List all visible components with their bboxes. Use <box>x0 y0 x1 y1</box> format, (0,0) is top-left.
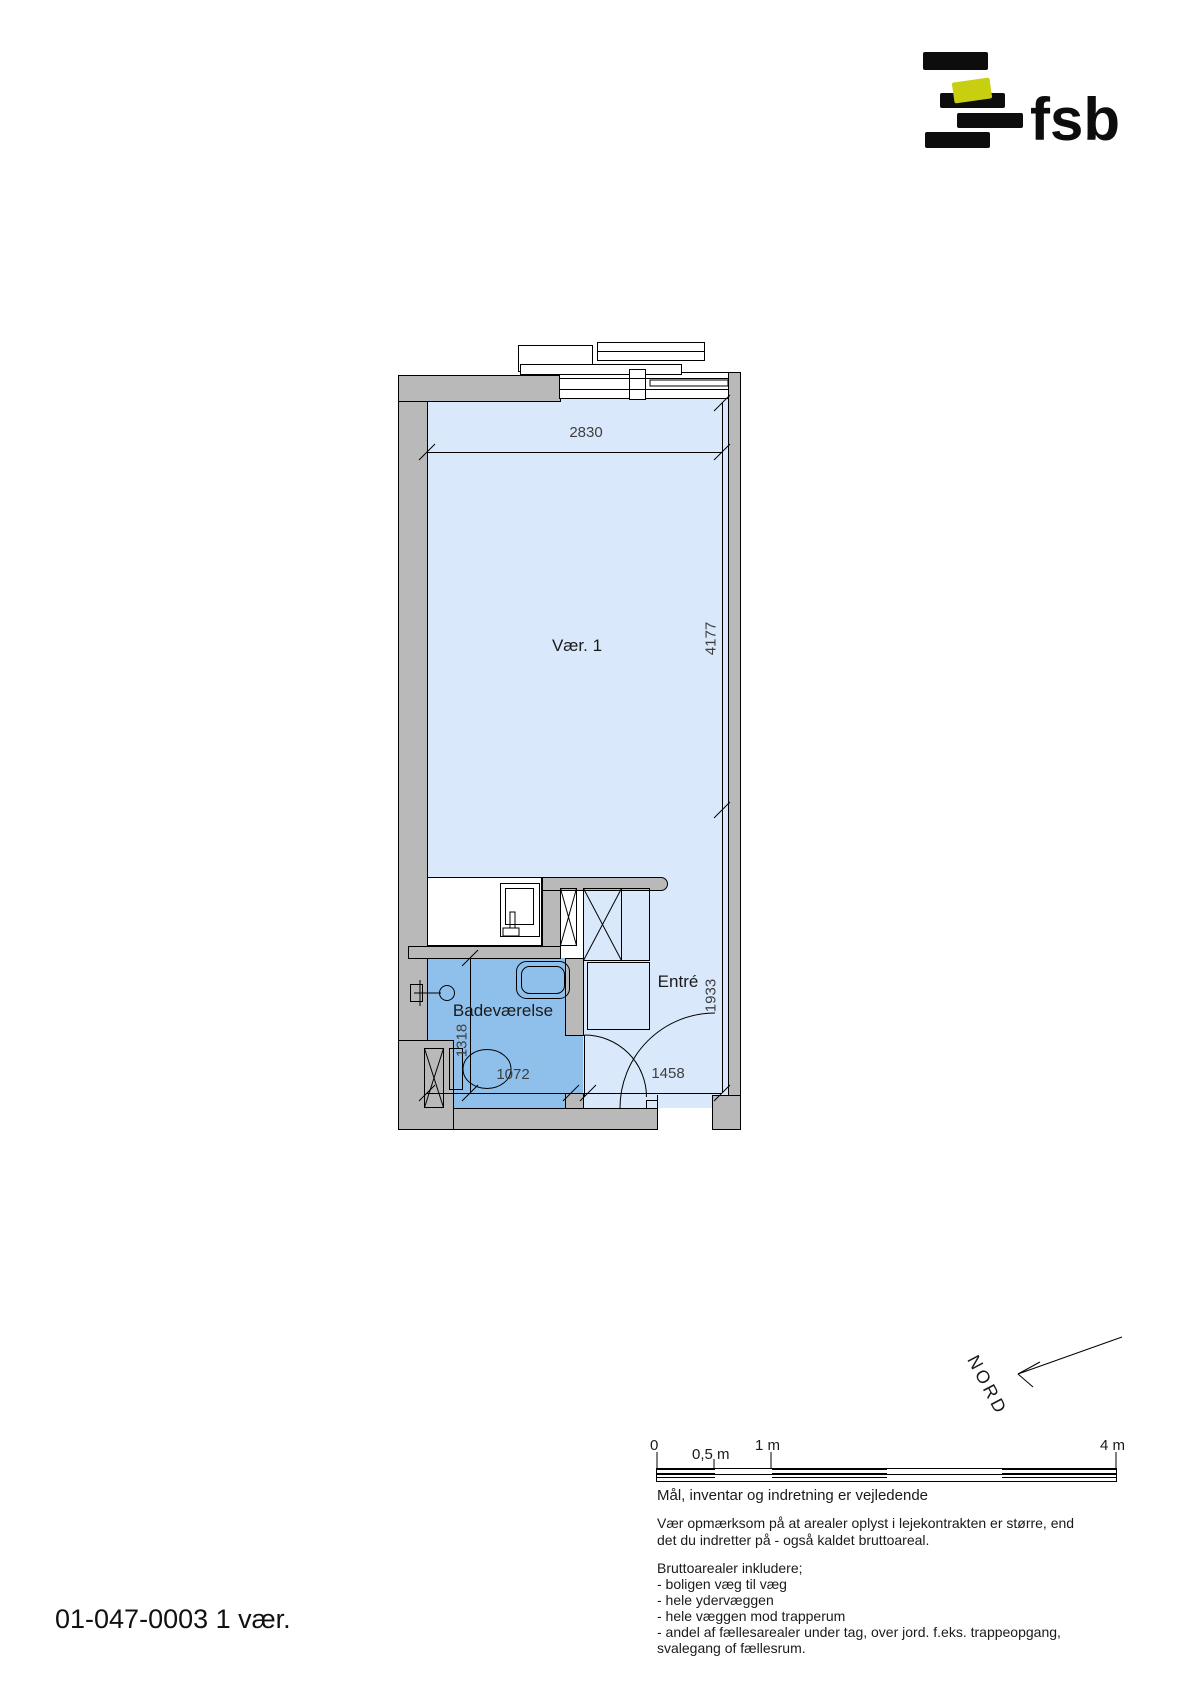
dim-label-top-width: 2830 <box>546 424 626 441</box>
plan-drawing-overlay <box>0 0 1200 1697</box>
dim-label-bathroom-height: 1318 <box>454 1006 471 1076</box>
dim-label-entry-width: 1458 <box>628 1065 708 1082</box>
room-label-main: Vær. 1 <box>527 636 627 656</box>
north-arrow-icon <box>1018 1337 1122 1387</box>
bathtub-fixture <box>517 962 570 999</box>
kitchen-counter <box>428 878 542 946</box>
floorplan-page: fsb <box>0 0 1200 1697</box>
dim-label-bathroom-width: 1072 <box>473 1066 553 1083</box>
scale-bar-ticks <box>657 1452 1116 1468</box>
dimension-lines <box>419 395 730 1101</box>
window-detail-lines <box>560 352 728 390</box>
kitchen-sink-fixture <box>501 884 540 937</box>
dim-label-main-height: 4177 <box>703 604 720 674</box>
dim-label-entry-height: 1933 <box>703 961 720 1031</box>
